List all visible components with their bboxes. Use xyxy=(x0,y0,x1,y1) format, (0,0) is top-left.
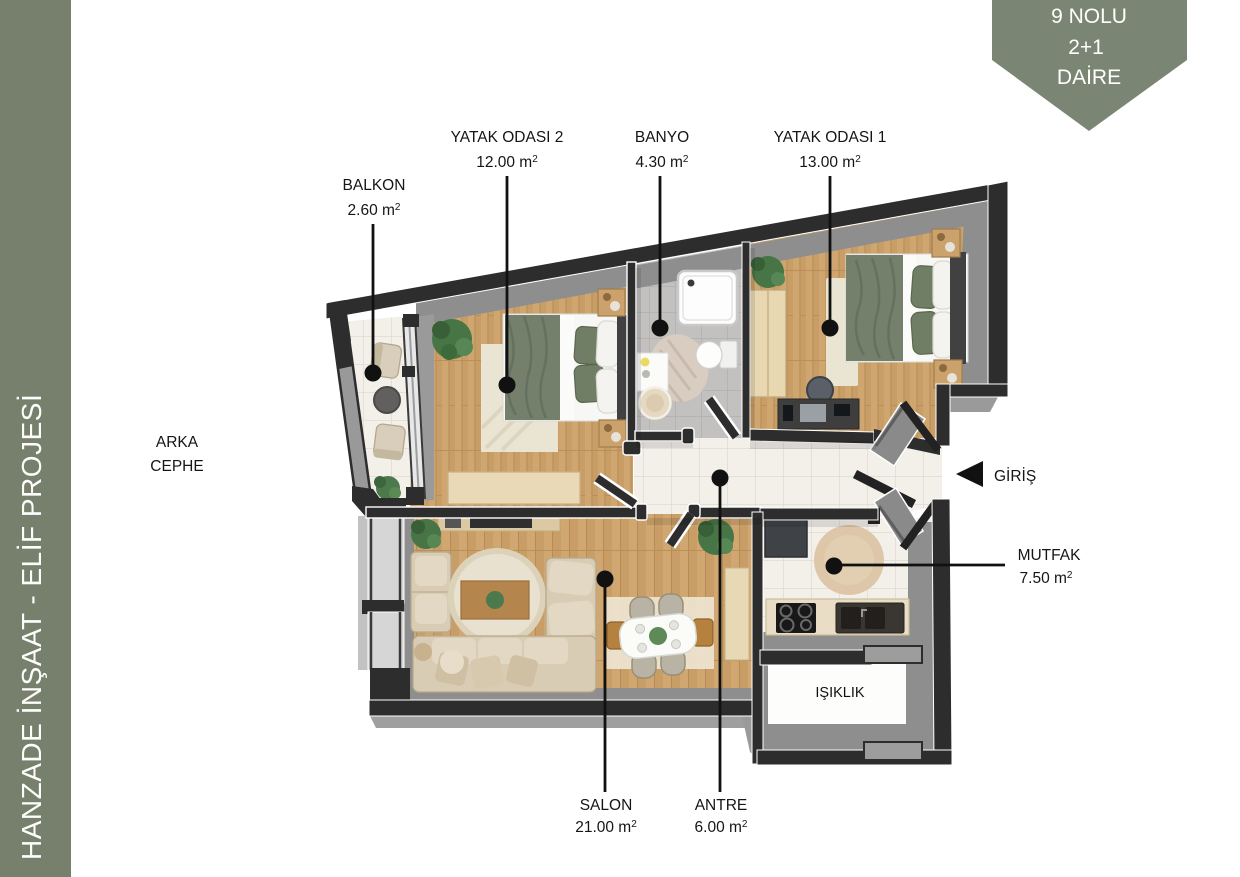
svg-text:ARKA: ARKA xyxy=(156,434,199,451)
svg-text:BALKON: BALKON xyxy=(343,177,406,194)
svg-text:13.00 m2: 13.00 m2 xyxy=(799,154,861,171)
svg-text:ANTRE: ANTRE xyxy=(695,797,748,814)
svg-text:2+1: 2+1 xyxy=(1068,36,1104,59)
svg-text:21.00 m2: 21.00 m2 xyxy=(575,819,637,836)
svg-text:YATAK ODASI 2: YATAK ODASI 2 xyxy=(451,129,564,146)
svg-text:IŞIKLIK: IŞIKLIK xyxy=(815,685,864,701)
svg-text:YATAK ODASI 1: YATAK ODASI 1 xyxy=(774,129,887,146)
svg-text:HANZADE İNŞAAT - ELİF PROJESİ: HANZADE İNŞAAT - ELİF PROJESİ xyxy=(16,394,47,860)
svg-text:4.30 m2: 4.30 m2 xyxy=(636,154,689,171)
svg-text:DAİRE: DAİRE xyxy=(1057,66,1121,89)
svg-text:MUTFAK: MUTFAK xyxy=(1018,547,1082,564)
svg-text:GİRİŞ: GİRİŞ xyxy=(994,467,1036,485)
svg-text:SALON: SALON xyxy=(580,797,633,814)
svg-text:2.60 m2: 2.60 m2 xyxy=(348,202,401,219)
svg-text:6.00 m2: 6.00 m2 xyxy=(695,819,748,836)
svg-text:BANYO: BANYO xyxy=(635,129,689,146)
svg-text:9 NOLU: 9 NOLU xyxy=(1051,5,1127,28)
svg-text:12.00 m2: 12.00 m2 xyxy=(476,154,538,171)
svg-text:7.50 m2: 7.50 m2 xyxy=(1020,570,1073,587)
svg-text:CEPHE: CEPHE xyxy=(150,458,203,475)
